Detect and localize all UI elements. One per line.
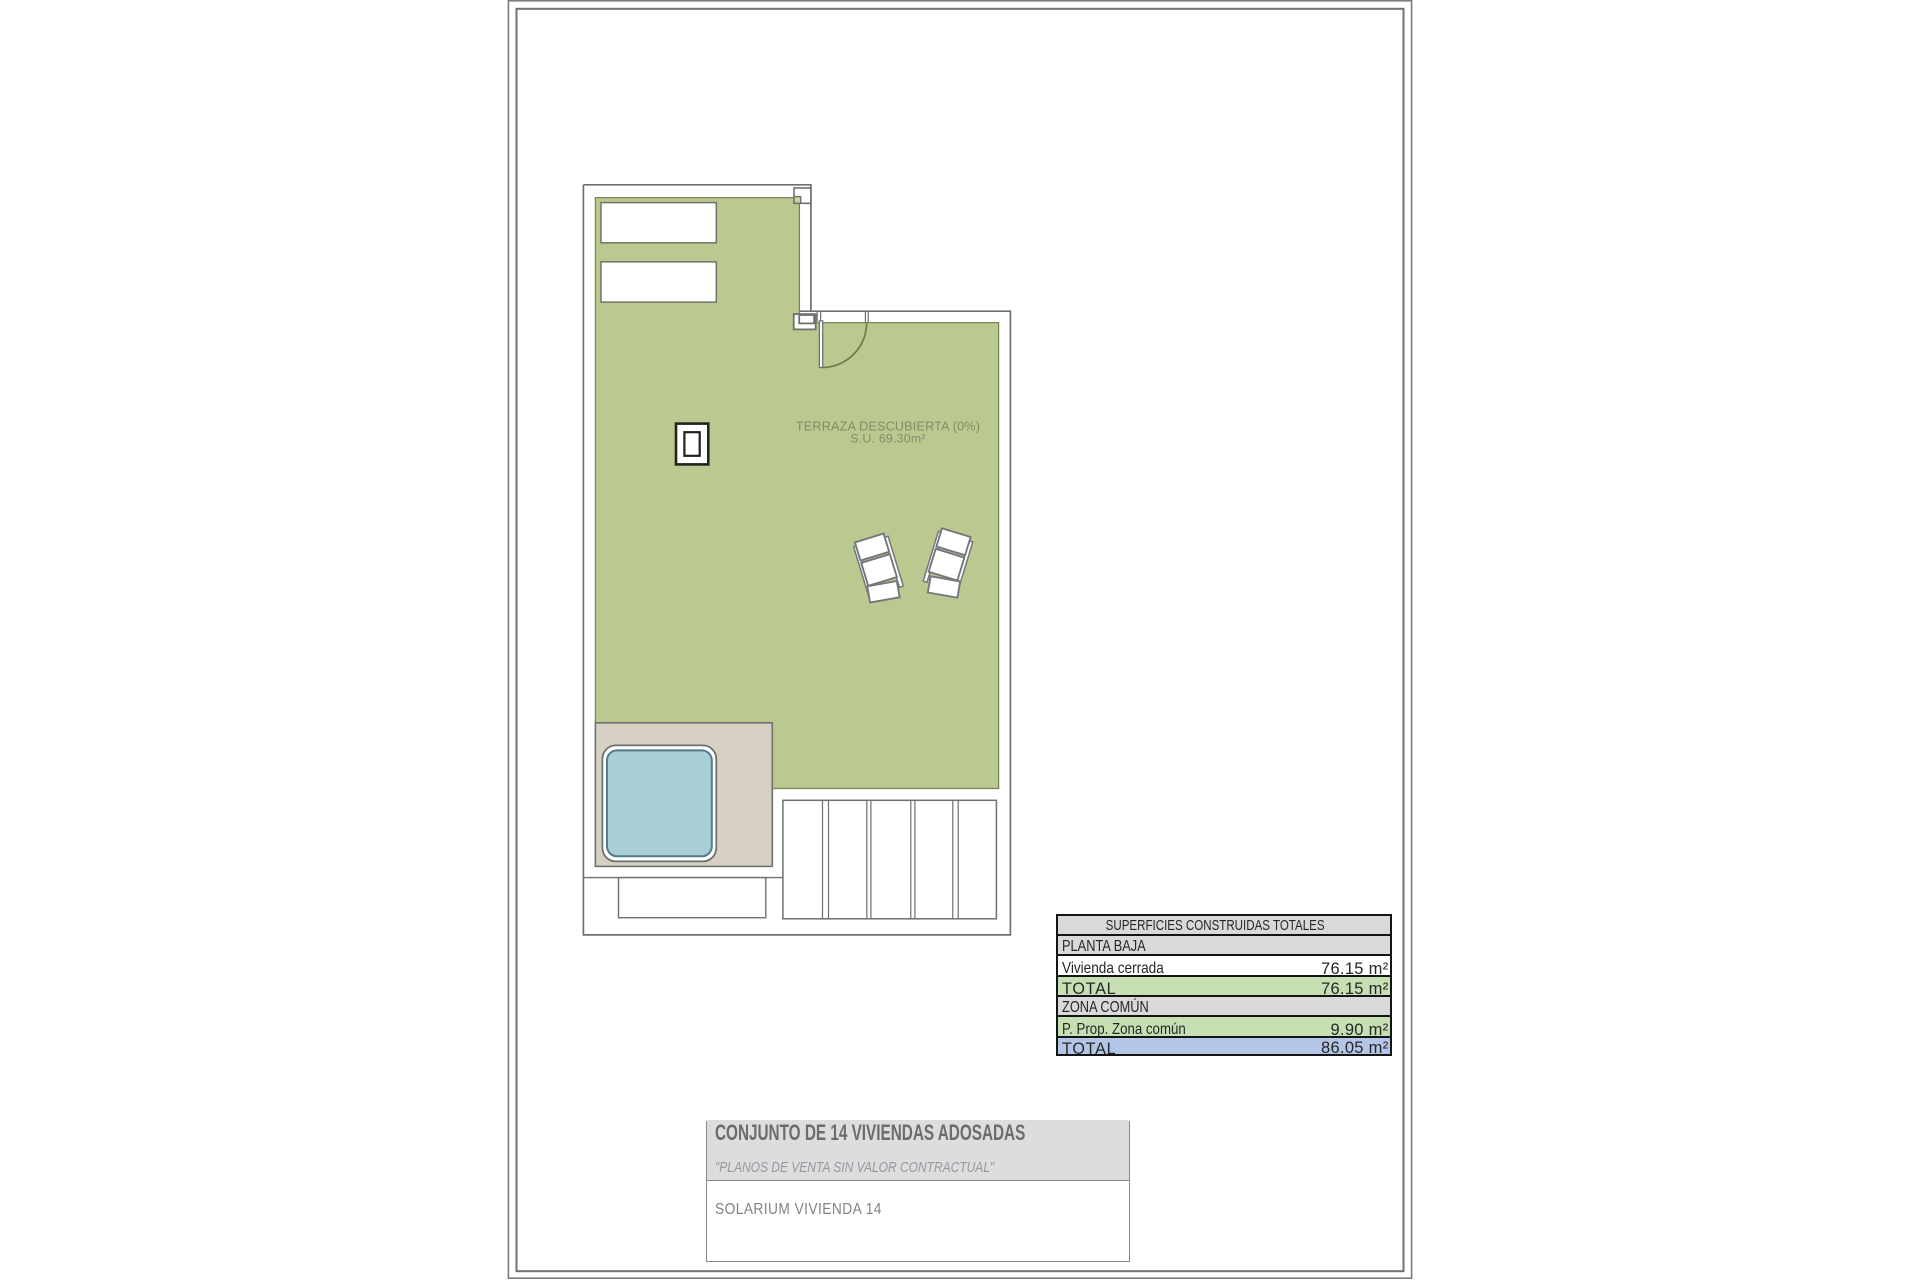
svg-text:S.U. 69.30m²: S.U. 69.30m² (850, 432, 925, 446)
